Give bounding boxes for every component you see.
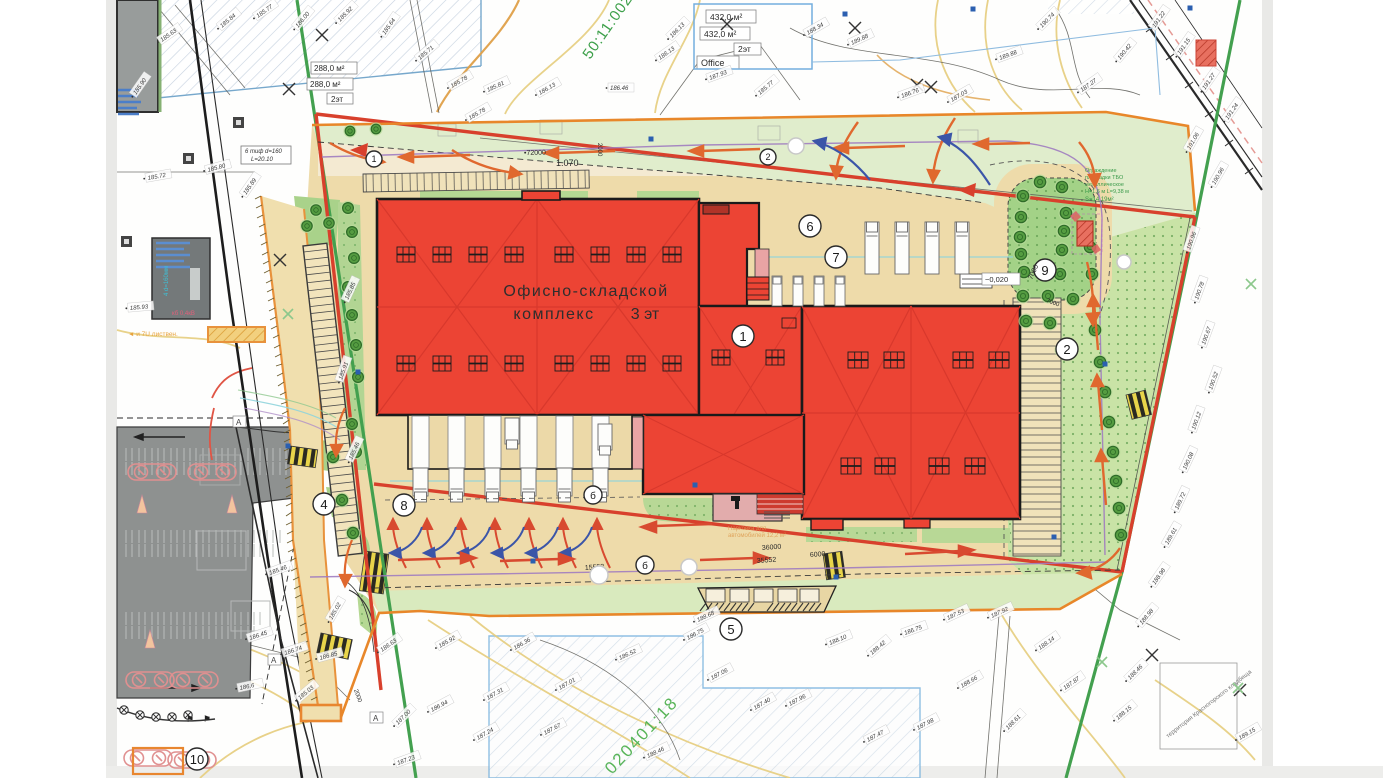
- svg-text:5: 5: [727, 622, 734, 637]
- svg-text:А: А: [271, 656, 277, 665]
- svg-text:1.070: 1.070: [556, 158, 579, 168]
- svg-text:6 тиф d=160: 6 тиф d=160: [245, 149, 283, 155]
- svg-text:◄ и 7U листвен.: ◄ и 7U листвен.: [128, 331, 178, 338]
- svg-text:2: 2: [1063, 342, 1070, 357]
- svg-text:3 эт: 3 эт: [631, 306, 660, 323]
- svg-text:автомобилей 12,2 м²: автомобилей 12,2 м²: [728, 532, 786, 539]
- svg-text:36000: 36000: [762, 544, 782, 552]
- svg-text:186.46: 186.46: [610, 86, 629, 92]
- svg-text:10: 10: [190, 752, 204, 767]
- svg-text:•72000: •72000: [524, 150, 546, 157]
- svg-text:L=20.10: L=20.10: [251, 157, 274, 163]
- svg-text:Office: Office: [701, 58, 724, 68]
- svg-text:8: 8: [400, 498, 407, 513]
- svg-text:Н=1,6 м L=9,38 м: Н=1,6 м L=9,38 м: [1085, 189, 1129, 195]
- svg-text:б: б: [590, 490, 596, 502]
- svg-text:9: 9: [1041, 263, 1048, 278]
- svg-text:А: А: [373, 714, 379, 723]
- svg-text:35552: 35552: [757, 557, 777, 565]
- svg-text:Парковка для: Парковка для: [728, 526, 766, 532]
- svg-text:7: 7: [832, 250, 839, 265]
- svg-text:кб 0,4кВ: кб 0,4кВ: [172, 311, 195, 317]
- svg-text:288,0 м²: 288,0 м²: [310, 80, 341, 89]
- svg-text:−0,020: −0,020: [985, 275, 1008, 284]
- svg-text:1: 1: [739, 329, 746, 344]
- svg-text:S=14,19м²: S=14,19м²: [1085, 197, 1114, 203]
- svg-text:Офисно-складской: Офисно-складской: [503, 283, 668, 300]
- svg-text:6: 6: [806, 219, 813, 234]
- svg-text:288,0 м²: 288,0 м²: [314, 64, 345, 73]
- svg-text:4 d=160мм: 4 d=160мм: [164, 266, 170, 296]
- svg-text:металлическое: металлическое: [1085, 182, 1124, 188]
- svg-text:1: 1: [371, 154, 376, 164]
- svg-text:2эт: 2эт: [738, 44, 751, 54]
- svg-text:⚑: ⚑: [203, 714, 211, 724]
- svg-text:2000: 2000: [596, 143, 602, 157]
- svg-text:⚑: ⚑: [186, 714, 194, 724]
- svg-text:2эт: 2эт: [331, 95, 343, 104]
- svg-text:432,0 м²: 432,0 м²: [704, 29, 736, 39]
- svg-text:6000: 6000: [810, 551, 826, 559]
- svg-text:б: б: [642, 560, 648, 572]
- svg-text:комплекс: комплекс: [513, 306, 594, 323]
- svg-text:4: 4: [320, 497, 327, 512]
- svg-text:2: 2: [765, 152, 770, 162]
- svg-text:А: А: [236, 418, 242, 427]
- svg-text:432,0 м²: 432,0 м²: [710, 12, 742, 22]
